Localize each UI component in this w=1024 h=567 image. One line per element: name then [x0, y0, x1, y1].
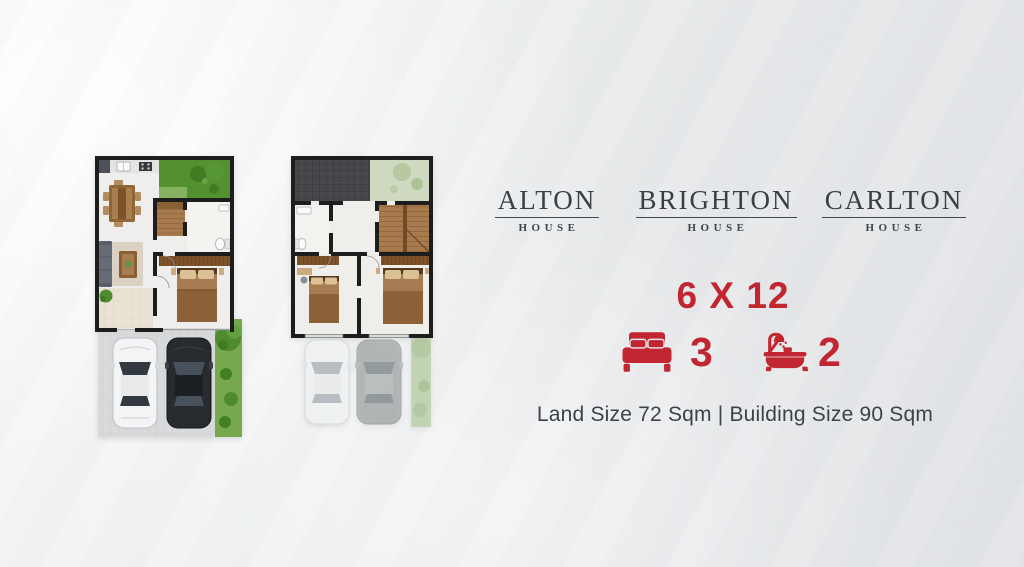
bathroom-count: 2 [818, 332, 841, 373]
house-name-alton: ALTON HOUSE [486, 186, 608, 234]
bed-icon [620, 331, 674, 373]
house-name-carlton: CARLTON HOUSE [828, 186, 960, 234]
upper-floor-plan [291, 156, 433, 427]
house-name: BRIGHTON [636, 186, 797, 218]
ground-floor-plan-image [95, 156, 242, 437]
house-name-sublabel: HOUSE [861, 222, 926, 234]
house-name: CARLTON [822, 186, 967, 218]
house-name-sublabel: HOUSE [514, 222, 579, 234]
upper-floor-plan-image [291, 156, 433, 427]
bedroom-feature: 3 [620, 331, 713, 373]
house-name-brighton: BRIGHTON HOUSE [638, 186, 794, 234]
house-name-sublabel: HOUSE [683, 222, 748, 234]
land-building-size: Land Size 72 Sqm | Building Size 90 Sqm [510, 403, 960, 427]
bedroom-count: 3 [690, 332, 713, 373]
brochure-page: ALTON HOUSE BRIGHTON HOUSE CARLTON HOUSE… [0, 0, 1024, 567]
ground-floor-plan [95, 156, 242, 437]
house-name: ALTON [495, 186, 600, 218]
plot-dimensions: 6 X 12 [633, 276, 833, 317]
bath-icon [762, 329, 808, 375]
bathroom-feature: 2 [762, 329, 841, 375]
